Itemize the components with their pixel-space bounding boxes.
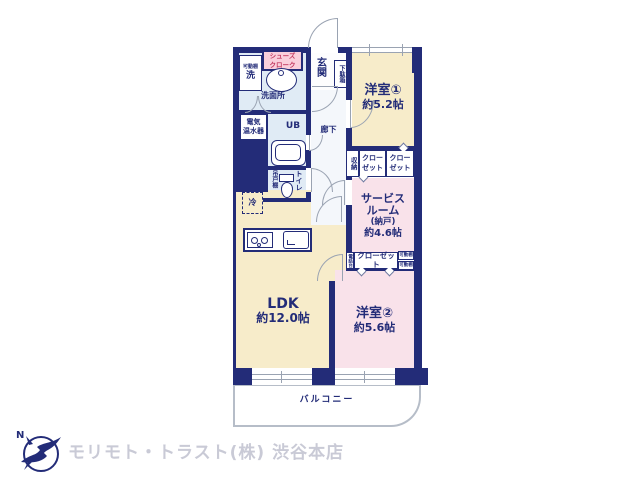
yoshitsu2-area: 約5.6帖 xyxy=(354,322,396,335)
stove-burner xyxy=(257,243,261,247)
window-tick xyxy=(402,44,403,56)
logo-bird-icon xyxy=(21,437,61,462)
window-tick xyxy=(364,371,365,383)
wall-right xyxy=(414,47,422,368)
window-yoshitsu2-bottom xyxy=(335,374,395,380)
hanging-cupboard-label: 吊戸棚 xyxy=(270,170,277,188)
closet-box: クロー ゼット xyxy=(386,150,414,177)
washbasin-faucet xyxy=(278,70,284,76)
stove-burner xyxy=(261,237,268,244)
toilet-tank xyxy=(279,174,294,182)
service-room-label-block: サービス ルーム (納戸) 約4.6帖 xyxy=(352,188,414,244)
genkan-label: 玄関 xyxy=(314,57,326,77)
balcony-label: バルコニー xyxy=(235,395,419,405)
wall-ldk-yoshitsu2-divider xyxy=(329,281,335,368)
shoe-cabinet-box: 下駄箱 xyxy=(334,60,347,88)
service-room-name: (納戸) xyxy=(371,218,396,228)
wall-bottom-left-block xyxy=(233,368,252,385)
water-heater-label: 電気 xyxy=(247,118,261,127)
washing-machine-box: 可動棚 洗 xyxy=(239,55,262,91)
bathroom-label: UB xyxy=(281,120,305,132)
bathtub xyxy=(271,140,306,166)
shoes-cloak-label: シューズ xyxy=(270,52,296,60)
kitchen-stove xyxy=(247,232,273,248)
shoe-cabinet-label: 下駄箱 xyxy=(337,65,344,83)
washer-label: 洗 xyxy=(246,71,255,81)
agency-name: モリモト・トラスト(株) 渋谷本店 xyxy=(68,438,344,463)
window-yoshitsu1-top xyxy=(352,47,412,53)
closet-label: ゼット xyxy=(390,164,411,173)
refrigerator-label: 冷 xyxy=(249,198,257,207)
service-room-area: 約4.6帖 xyxy=(364,228,402,240)
movable-shelf-label: 可動棚 xyxy=(399,253,413,258)
logo-compass-n: N xyxy=(16,430,24,441)
closet-label: クロー xyxy=(390,154,411,163)
storage-label: 収納 xyxy=(349,157,356,170)
kitchen-sink xyxy=(283,231,309,249)
phone-stand-box: 電話台 xyxy=(346,252,354,269)
wall-left-lower xyxy=(233,190,236,368)
balcony: バルコニー xyxy=(233,385,421,427)
toilet-label: トイレ xyxy=(295,170,303,191)
water-heater-label: 温水器 xyxy=(243,127,264,136)
ldk-area: 約12.0帖 xyxy=(256,312,310,326)
yoshitsu2-label-block: 洋室② 約5.6帖 xyxy=(337,303,412,339)
window-ldk-bottom xyxy=(252,374,312,380)
bathtub-inner xyxy=(275,144,301,161)
wall-corridor-left xyxy=(306,53,311,135)
closet-label: クロー xyxy=(362,154,383,163)
wall-corridor-left xyxy=(306,150,311,168)
entrance-door xyxy=(308,18,338,48)
yoshitsu2-name: 洋室② xyxy=(356,307,393,322)
closet-label: ゼット xyxy=(362,164,383,173)
floor-plan: バルコニー シューズ クローク 玄関 下駄箱 可動棚 洗 洗面所 電気 温水器 … xyxy=(0,0,640,480)
sink-faucet xyxy=(287,240,295,245)
room-ldk-floor xyxy=(236,190,311,368)
wall-bottom-right-block xyxy=(395,368,428,385)
wall-bottom-mid-block xyxy=(312,368,335,385)
movable-shelf-box: 可動棚 xyxy=(398,251,414,260)
window-tick xyxy=(281,371,282,383)
ldk-label-block: LDK 約12.0帖 xyxy=(238,293,328,329)
movable-shelf-label: 可動棚 xyxy=(399,263,413,268)
yoshitsu1-name: 洋室① xyxy=(364,84,401,99)
storage-box: 収納 xyxy=(346,150,359,177)
ldk-name: LDK xyxy=(267,296,298,312)
window-tick xyxy=(369,44,370,56)
agency-logo: N xyxy=(14,426,66,478)
wall-toilet-bottom xyxy=(262,198,311,202)
phone-stand-label: 電話台 xyxy=(347,254,352,268)
refrigerator-space: 冷 xyxy=(242,192,263,214)
movable-shelf-box: 可動棚 xyxy=(398,261,414,270)
wall-pipe-mass xyxy=(233,141,268,192)
water-heater-box: 電気 温水器 xyxy=(239,113,268,141)
